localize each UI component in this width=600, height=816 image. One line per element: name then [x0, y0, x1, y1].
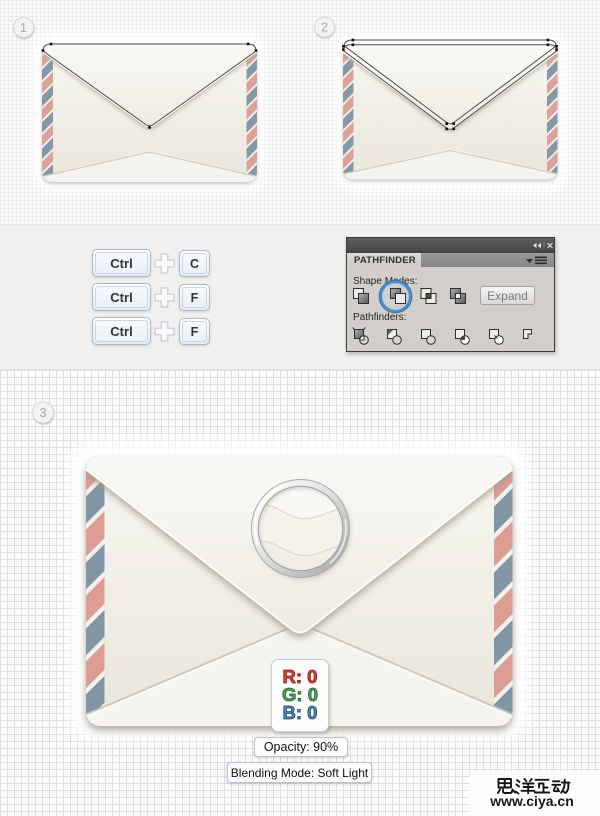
svg-text:www.ciya.cn: www.ciya.cn	[489, 793, 574, 809]
svg-text:2: 2	[321, 20, 328, 35]
svg-text:3: 3	[39, 405, 46, 420]
svg-text:1: 1	[20, 20, 27, 35]
